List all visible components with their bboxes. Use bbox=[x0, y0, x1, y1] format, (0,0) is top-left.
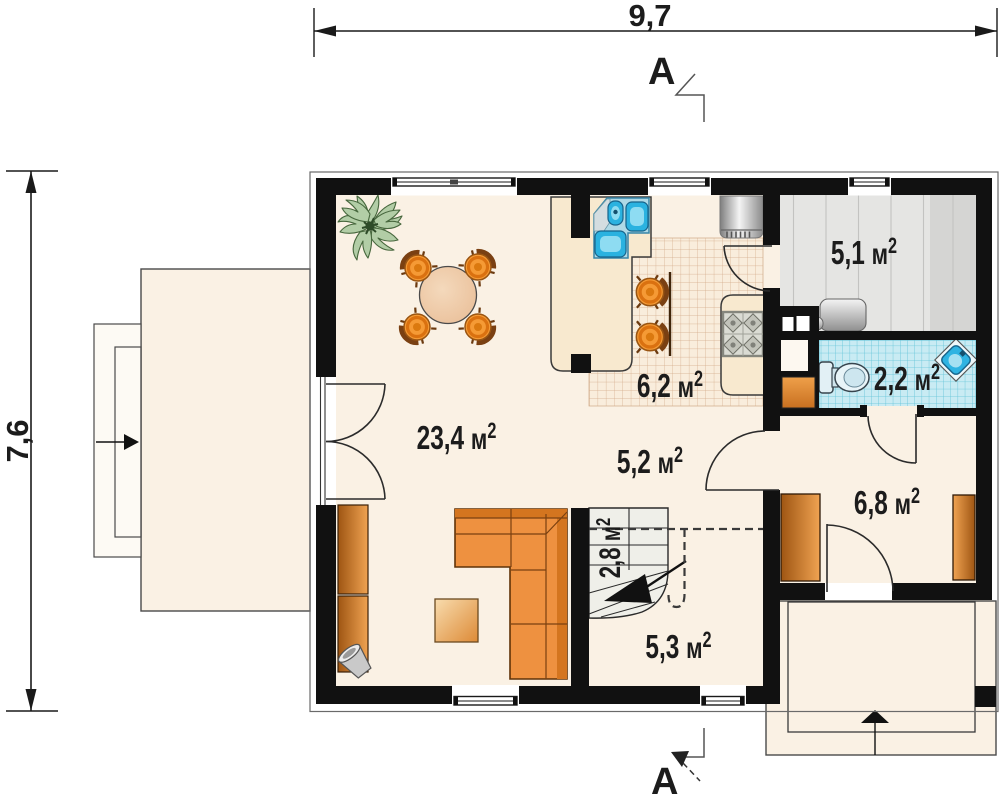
svg-text:5,2 м2: 5,2 м2 bbox=[617, 443, 683, 481]
svg-text:7,6: 7,6 bbox=[0, 419, 35, 462]
svg-text:6,2 м2: 6,2 м2 bbox=[637, 367, 703, 405]
svg-text:23,4 м2: 23,4 м2 bbox=[417, 419, 497, 457]
svg-text:A: A bbox=[648, 51, 675, 93]
svg-text:6,8 м2: 6,8 м2 bbox=[854, 484, 920, 522]
svg-text:5,3 м2: 5,3 м2 bbox=[645, 628, 711, 666]
svg-text:5,1 м2: 5,1 м2 bbox=[831, 234, 897, 272]
svg-text:9,7: 9,7 bbox=[628, 0, 671, 33]
svg-text:2,8 м2: 2,8 м2 bbox=[592, 518, 627, 579]
svg-text:A: A bbox=[651, 761, 678, 795]
svg-text:2,2 м2: 2,2 м2 bbox=[874, 360, 940, 398]
